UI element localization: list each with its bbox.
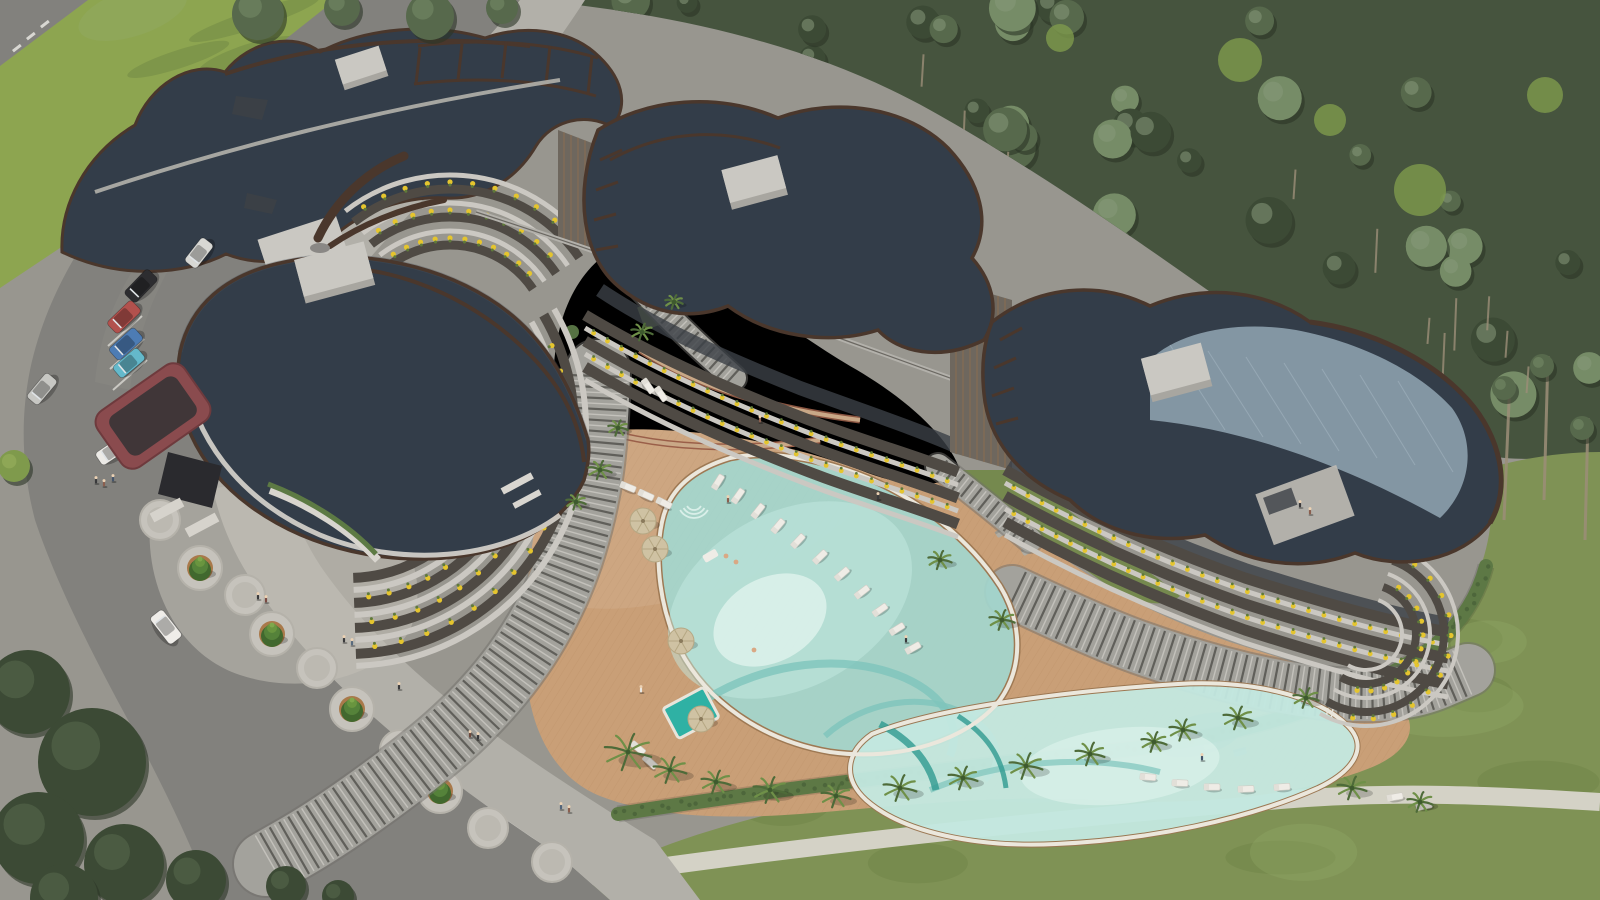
planter-shrub xyxy=(1012,484,1015,487)
planter-shrub xyxy=(620,371,623,374)
hedge-leaf xyxy=(722,794,726,798)
planter-shrub xyxy=(1112,534,1115,537)
tree-highlight xyxy=(1558,253,1569,264)
planter-shrub xyxy=(1444,614,1447,617)
planter-shrub xyxy=(620,345,623,348)
hedge-leaf xyxy=(666,806,670,810)
palm-crown xyxy=(714,780,719,785)
tree-highlight xyxy=(4,804,45,845)
person-head xyxy=(640,685,643,688)
person xyxy=(112,477,114,482)
planter-shrub xyxy=(1372,714,1375,717)
tree-highlight xyxy=(1115,89,1128,102)
conical-tree-top xyxy=(350,698,355,703)
planter-shrub xyxy=(492,588,495,591)
planter-shrub xyxy=(1369,686,1372,689)
person-shadow xyxy=(343,642,348,644)
planter-shrub xyxy=(1026,517,1029,520)
planter-shrub xyxy=(1127,541,1130,544)
planter-shrub xyxy=(855,472,858,475)
palm-crown xyxy=(598,468,603,473)
paving-medallion-inner xyxy=(475,815,501,841)
planter-shrub xyxy=(677,400,680,403)
planter-shrub xyxy=(1156,579,1159,582)
person xyxy=(1309,510,1311,515)
planter-shrub xyxy=(457,584,460,587)
planter-shrub xyxy=(1098,553,1101,556)
palm-crown xyxy=(668,768,673,773)
person-shadow xyxy=(877,499,882,501)
planter-shrub xyxy=(1409,701,1412,704)
tree-highlight xyxy=(271,871,289,889)
tree-highlight xyxy=(52,722,101,771)
person-shadow xyxy=(469,737,474,739)
tree-highlight xyxy=(1098,124,1116,142)
palm-crown xyxy=(898,786,903,791)
planter-shrub xyxy=(1083,521,1086,524)
planter-shrub xyxy=(692,381,695,384)
planter-shrub xyxy=(449,212,452,215)
swimmer xyxy=(734,560,739,565)
planter-shrub xyxy=(1384,654,1387,657)
paving-medallion-inner xyxy=(232,582,258,608)
tree-highlight xyxy=(1444,259,1458,273)
planter-shrub xyxy=(1201,597,1204,600)
planter-shrub xyxy=(606,363,609,366)
planter-shrub xyxy=(504,255,507,258)
person-head xyxy=(95,476,98,479)
scene-svg xyxy=(0,0,1600,900)
planter-shrub xyxy=(1338,616,1341,619)
palm-crown xyxy=(1181,728,1186,733)
tree-highlight xyxy=(326,884,340,898)
planter-shrub xyxy=(900,461,903,464)
planter-shrub xyxy=(1083,547,1086,550)
planter-shrub xyxy=(449,240,452,243)
planter-shrub xyxy=(946,503,949,506)
planter-shrub xyxy=(706,413,709,416)
planter-shrub xyxy=(1413,608,1416,611)
planter-shrub xyxy=(825,461,828,464)
planter-shrub xyxy=(533,242,536,245)
planter-shrub xyxy=(1156,553,1159,556)
planter-shrub xyxy=(916,466,919,469)
person xyxy=(257,595,259,600)
planter-shrub xyxy=(1277,597,1280,600)
planter-shrub xyxy=(547,255,550,258)
person-head xyxy=(477,732,480,735)
planter-shrub xyxy=(533,208,536,211)
planter-shrub xyxy=(750,406,753,409)
palm-crown xyxy=(768,788,773,793)
planter-shrub xyxy=(736,400,739,403)
hedge-leaf xyxy=(823,783,827,787)
planter-shrub xyxy=(1261,593,1264,596)
planter-shrub xyxy=(795,450,798,453)
planter-shrub xyxy=(491,552,494,555)
planter-shrub xyxy=(592,355,595,358)
swimmer xyxy=(752,648,757,653)
palm-crown xyxy=(938,558,943,563)
planter-shrub xyxy=(634,352,637,355)
planter-shrub xyxy=(551,221,554,224)
planter-shrub xyxy=(1322,637,1325,640)
tree-highlight xyxy=(910,10,925,25)
planter-shrub xyxy=(406,582,409,585)
tree-highlight xyxy=(802,19,815,32)
person-shadow xyxy=(398,689,403,691)
hedge-leaf xyxy=(802,782,806,786)
person-head xyxy=(398,682,401,685)
palm-crown xyxy=(961,776,966,781)
hedge-leaf xyxy=(693,801,697,805)
person-shadow xyxy=(1309,514,1314,516)
planter-shrub xyxy=(404,190,407,193)
person-shadow xyxy=(1201,760,1206,762)
tree-highlight xyxy=(1136,117,1154,135)
person-head xyxy=(257,592,260,595)
person-shadow xyxy=(560,809,565,811)
planter-shrub xyxy=(780,444,783,447)
parasol-pole xyxy=(653,547,657,551)
planter-shrub xyxy=(780,418,783,421)
planter-shrub xyxy=(721,394,724,397)
planter-shrub xyxy=(648,360,651,363)
planter-shrub xyxy=(1412,565,1415,568)
person-head xyxy=(727,495,730,498)
person-head xyxy=(568,805,571,808)
planter-shrub xyxy=(663,367,666,370)
planter-shrub xyxy=(931,498,934,501)
planter-shrub xyxy=(1436,672,1439,675)
tree-highlight xyxy=(1352,147,1362,157)
tree-highlight xyxy=(933,18,946,31)
planter-shrub xyxy=(1353,646,1356,649)
palm-crown xyxy=(626,750,631,755)
person-shadow xyxy=(1299,507,1304,509)
person xyxy=(469,733,471,738)
planter-shrub xyxy=(412,217,415,220)
person-shadow xyxy=(477,739,482,741)
person xyxy=(1201,756,1203,761)
person xyxy=(343,638,345,643)
planter-shrub xyxy=(1322,611,1325,614)
planter-shrub xyxy=(1338,642,1341,645)
planter-shrub xyxy=(750,432,753,435)
planter-shrub xyxy=(1394,678,1397,681)
planter-shrub xyxy=(442,563,445,566)
planter-shrub xyxy=(765,438,768,441)
planter-shrub xyxy=(1424,688,1427,691)
tree-highlight xyxy=(1451,233,1467,249)
planter-shrub xyxy=(463,241,466,244)
person-head xyxy=(1201,753,1204,756)
hedge-leaf xyxy=(729,794,733,798)
planter-shrub xyxy=(1216,577,1219,580)
person-head xyxy=(560,802,563,805)
person xyxy=(95,479,97,484)
planter-shrub xyxy=(1186,565,1189,568)
person-shadow xyxy=(95,483,100,485)
planter-shrub xyxy=(1142,547,1145,550)
planter-shrub xyxy=(383,197,386,200)
planter-shrub xyxy=(1171,585,1174,588)
tree-highlight xyxy=(1180,151,1191,162)
planter-shrub xyxy=(425,574,428,577)
palm-crown xyxy=(640,330,645,335)
person xyxy=(103,482,105,487)
tree-highlight xyxy=(174,858,201,885)
person-shadow xyxy=(112,481,117,483)
forest-clearing xyxy=(1046,24,1074,52)
planter-shrub xyxy=(692,407,695,410)
person-head xyxy=(1309,507,1312,510)
person-head xyxy=(877,492,880,495)
person xyxy=(351,641,353,646)
person-head xyxy=(343,635,346,638)
planter-shrub xyxy=(1246,588,1249,591)
tree-highlight xyxy=(2,454,16,468)
parasol-pole xyxy=(679,639,683,643)
hedge-leaf xyxy=(679,799,683,803)
planter-shrub xyxy=(840,467,843,470)
hedge-leaf xyxy=(715,797,719,801)
planter-shrub xyxy=(870,451,873,454)
planter-shrub xyxy=(677,374,680,377)
planter-shrub xyxy=(900,487,903,490)
planter-shrub xyxy=(449,184,452,187)
hedge-leaf xyxy=(1472,593,1476,597)
planter-shrub xyxy=(606,337,609,340)
planter-shrub xyxy=(477,244,480,247)
planter-shrub xyxy=(1384,628,1387,631)
palm-crown xyxy=(1024,764,1029,769)
conical-tree-top xyxy=(198,557,203,562)
planter-shrub xyxy=(840,441,843,444)
hedge-leaf xyxy=(812,786,816,790)
planter-shrub xyxy=(916,492,919,495)
planter-shrub xyxy=(1400,657,1403,660)
planter-shrub xyxy=(1041,499,1044,502)
person-shadow xyxy=(727,502,732,504)
forest-clearing xyxy=(1394,164,1446,216)
person-head xyxy=(1299,500,1302,503)
planter-shrub xyxy=(885,456,888,459)
conical-tree-top xyxy=(270,623,275,628)
planter-shrub xyxy=(379,232,382,235)
person-shadow xyxy=(759,422,764,424)
planter-shrub xyxy=(1292,602,1295,605)
palm-crown xyxy=(1152,740,1157,745)
hedge-leaf xyxy=(708,797,712,801)
planter-shrub xyxy=(471,604,474,607)
hedge-leaf xyxy=(1472,601,1476,605)
planter-shrub xyxy=(592,329,595,332)
tree-highlight xyxy=(1054,4,1070,20)
tree-highlight xyxy=(1495,379,1506,390)
planter-shrub xyxy=(426,185,429,188)
planter-shrub xyxy=(870,477,873,480)
planter-shrub xyxy=(526,548,529,551)
planter-shrub xyxy=(434,241,437,244)
planter-shrub xyxy=(393,613,396,616)
palm-crown xyxy=(1418,800,1423,805)
tree-highlight xyxy=(94,834,130,870)
person-shadow xyxy=(257,599,262,601)
tree-highlight xyxy=(1411,231,1430,250)
parasol-pole xyxy=(641,519,645,523)
person-head xyxy=(265,595,268,598)
planter-shrub xyxy=(1369,624,1372,627)
planter-shrub xyxy=(510,569,513,572)
person-shadow xyxy=(265,602,270,604)
hedge-leaf xyxy=(660,804,664,808)
planter-shrub xyxy=(1417,620,1420,623)
planter-shrub xyxy=(1231,608,1234,611)
planter-shrub xyxy=(399,637,402,640)
person xyxy=(265,598,267,603)
hedge-leaf xyxy=(1483,576,1487,580)
hedge-leaf xyxy=(1486,564,1490,568)
architectural-render xyxy=(0,0,1600,900)
planter-shrub xyxy=(1444,654,1447,657)
swimmer xyxy=(724,554,729,559)
planter-shrub xyxy=(424,629,427,632)
planter-shrub xyxy=(518,232,521,235)
planter-shrub xyxy=(1069,514,1072,517)
planter-shrub xyxy=(437,596,440,599)
hedge-leaf xyxy=(831,782,835,786)
planter-shrub xyxy=(515,264,518,267)
planter-shrub xyxy=(1382,684,1385,687)
person xyxy=(1299,503,1301,508)
hedge-leaf xyxy=(1476,582,1480,586)
person xyxy=(398,685,400,690)
hedge-leaf xyxy=(633,812,637,816)
planter-shrub xyxy=(1356,686,1359,689)
planter-shrub xyxy=(795,424,798,427)
person-shadow xyxy=(103,486,108,488)
palm-crown xyxy=(1236,716,1241,721)
planter-shrub xyxy=(1186,591,1189,594)
tree-highlight xyxy=(1251,203,1272,224)
tree-highlight xyxy=(1263,82,1283,102)
person-shadow xyxy=(905,642,910,644)
hedge-leaf xyxy=(622,809,626,813)
planter-shrub xyxy=(467,213,470,216)
planter-shrub xyxy=(1098,527,1101,530)
planter-shrub xyxy=(1307,607,1310,610)
person xyxy=(727,498,729,503)
person xyxy=(477,735,479,740)
planter-shrub xyxy=(1246,614,1249,617)
planter-shrub xyxy=(420,244,423,247)
planter-shrub xyxy=(1369,650,1372,653)
person xyxy=(905,638,907,643)
forest-clearing xyxy=(1218,38,1262,82)
planter-shrub xyxy=(765,412,768,415)
planter-shrub xyxy=(1418,633,1421,636)
planter-shrub xyxy=(1261,619,1264,622)
palm-crown xyxy=(834,794,839,799)
planter-shrub xyxy=(514,197,517,200)
planter-shrub xyxy=(706,387,709,390)
planter-shrub xyxy=(1069,540,1072,543)
tree-highlight xyxy=(1476,323,1496,343)
hedge-leaf xyxy=(640,805,644,809)
planter-shrub xyxy=(1112,560,1115,563)
person-head xyxy=(905,635,908,638)
person-shadow xyxy=(568,812,573,814)
planter-shrub xyxy=(373,642,376,645)
person-shadow xyxy=(351,645,356,647)
planter-shrub xyxy=(1307,633,1310,636)
tree-highlight xyxy=(1573,419,1584,430)
hedge-leaf xyxy=(796,788,800,792)
palm-crown xyxy=(1088,752,1093,757)
planter-shrub xyxy=(387,589,390,592)
tree-highlight xyxy=(1249,10,1262,23)
grass-mottle xyxy=(868,843,968,883)
planter-shrub xyxy=(1231,582,1234,585)
planter-shrub xyxy=(1292,628,1295,631)
planter-shrub xyxy=(1417,646,1420,649)
planter-shrub xyxy=(885,482,888,485)
planter-shrub xyxy=(491,248,494,251)
planter-shrub xyxy=(370,617,373,620)
tree-highlight xyxy=(1577,356,1591,370)
person xyxy=(759,418,761,423)
planter-shrub xyxy=(1405,597,1408,600)
tree-highlight xyxy=(1533,357,1544,368)
planter-shrub xyxy=(1446,634,1449,637)
planter-shrub xyxy=(946,477,949,480)
forest-clearing xyxy=(1314,104,1346,136)
planter-shrub xyxy=(855,446,858,449)
planter-shrub xyxy=(1426,579,1429,582)
tree-highlight xyxy=(1327,256,1342,271)
planter-shrub xyxy=(367,592,370,595)
palm-crown xyxy=(1304,696,1309,701)
planter-shrub xyxy=(1391,710,1394,713)
tree-highlight xyxy=(1405,81,1419,95)
planter-shrub xyxy=(406,248,409,251)
person xyxy=(560,805,562,810)
palm-crown xyxy=(1350,786,1355,791)
planter-shrub xyxy=(1012,510,1015,513)
person-head xyxy=(112,474,115,477)
planter-shrub xyxy=(415,606,418,609)
sculpture-base xyxy=(310,243,330,253)
grass-mottle xyxy=(1250,824,1357,881)
planter-shrub xyxy=(1026,491,1029,494)
planter-shrub xyxy=(1055,532,1058,535)
planter-shrub xyxy=(1142,573,1145,576)
planter-shrub xyxy=(430,213,433,216)
planter-shrub xyxy=(393,255,396,258)
tree-highlight xyxy=(989,113,1009,133)
hedge-leaf xyxy=(741,791,745,795)
planter-shrub xyxy=(471,185,474,188)
planter-shrub xyxy=(825,435,828,438)
paving-medallion-inner xyxy=(304,655,330,681)
planter-shrub xyxy=(1353,620,1356,623)
planter-shrub xyxy=(634,378,637,381)
planter-shrub xyxy=(1352,713,1355,716)
planter-shrub xyxy=(1438,595,1441,598)
hedge-leaf xyxy=(613,810,617,814)
planter-shrub xyxy=(448,618,451,621)
